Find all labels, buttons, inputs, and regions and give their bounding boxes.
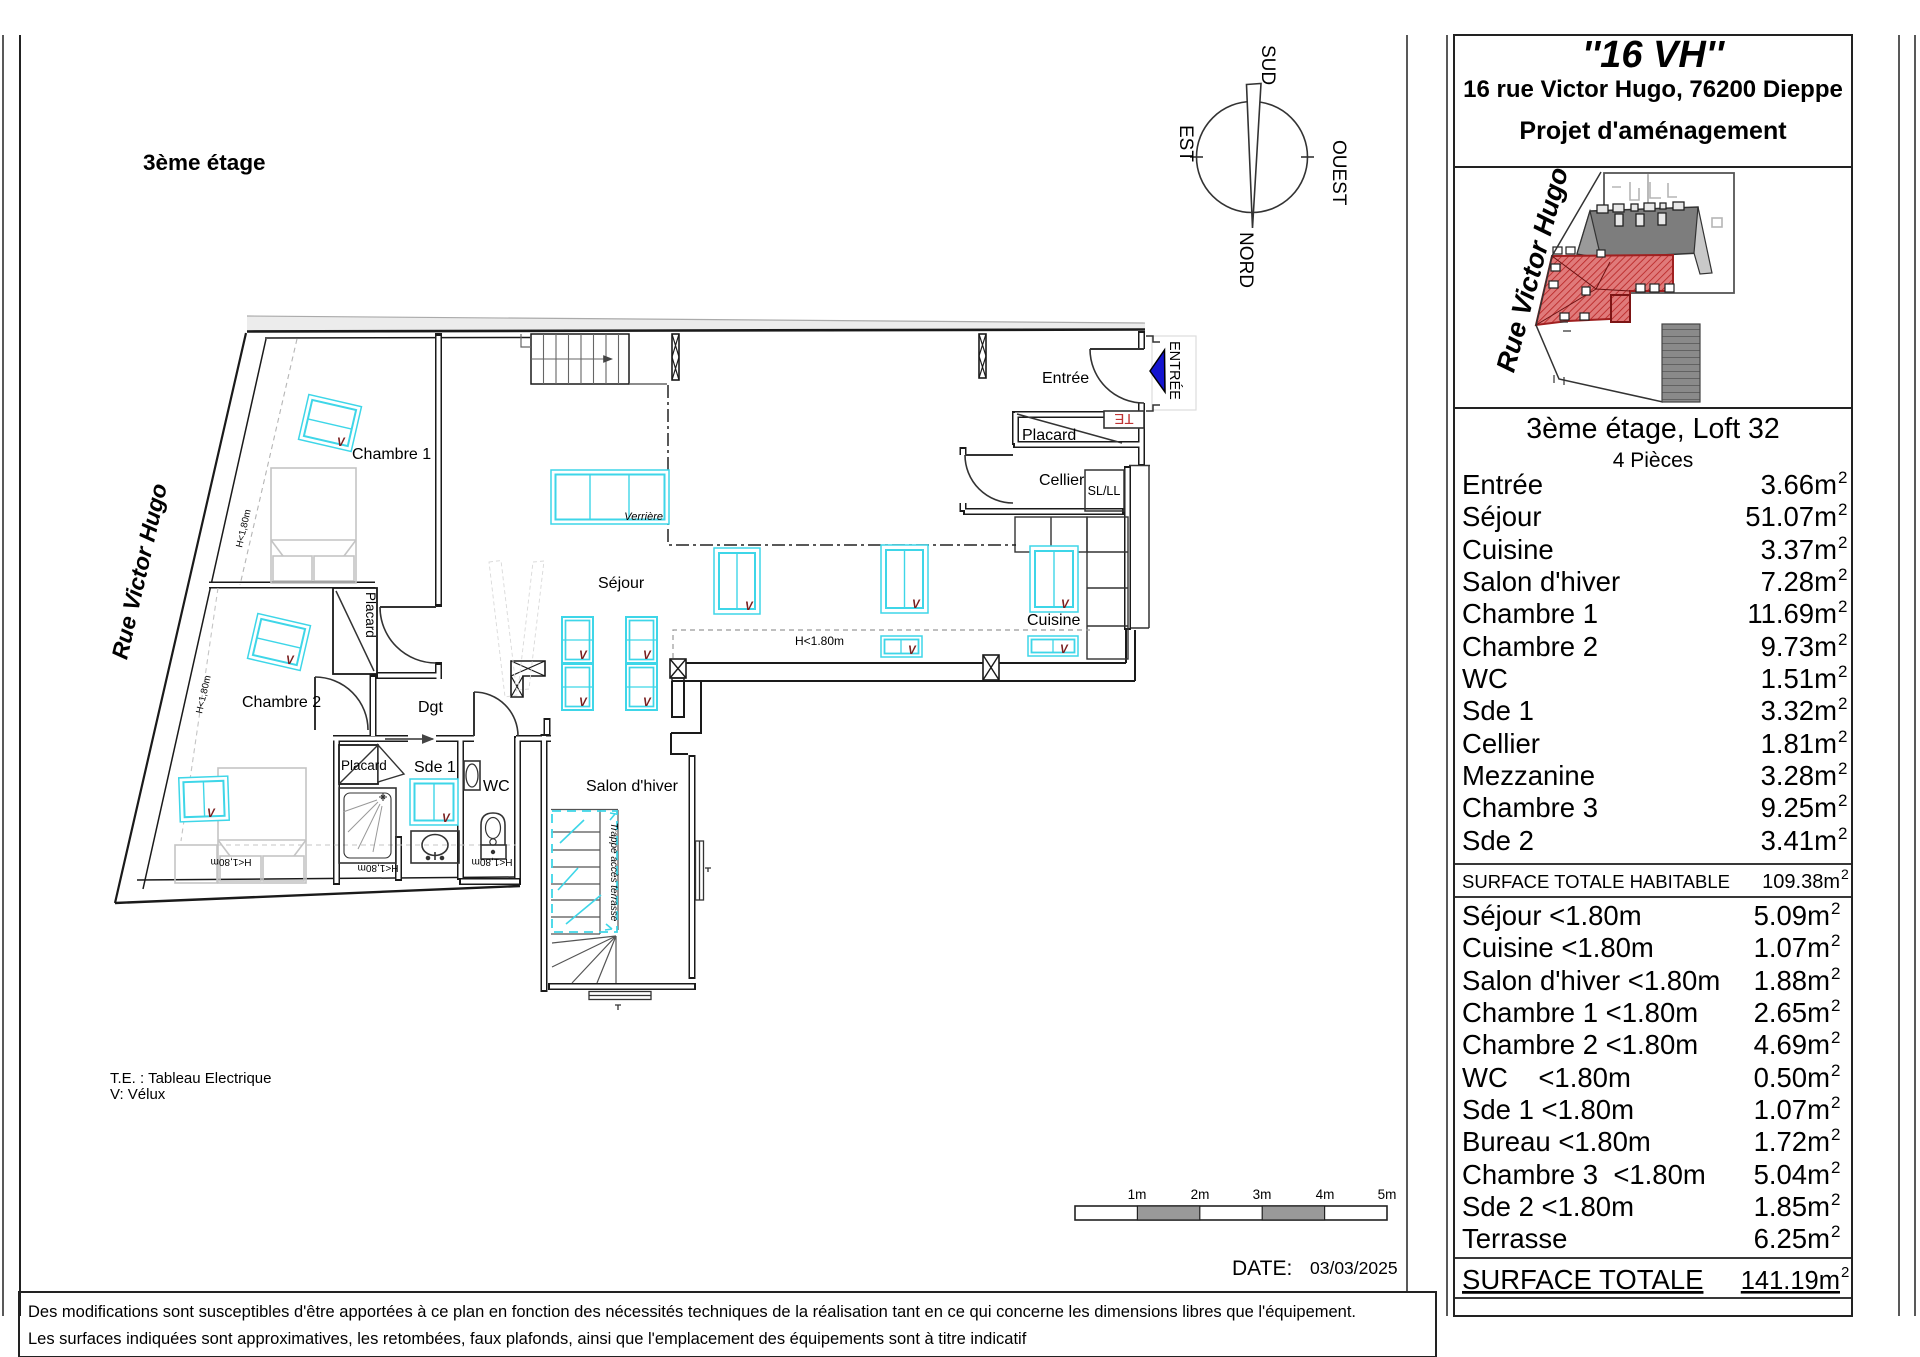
svg-text:V: V — [579, 697, 588, 709]
svg-text:Cuisine <1.80m: Cuisine <1.80m — [1462, 932, 1654, 963]
svg-text:Placard: Placard — [341, 758, 387, 773]
svg-text:109.38m: 109.38m — [1762, 871, 1840, 893]
svg-text:Chambre 1: Chambre 1 — [1462, 598, 1598, 629]
svg-text:Mezzanine: Mezzanine — [1462, 760, 1595, 791]
svg-text:2: 2 — [1838, 759, 1847, 778]
svg-text:SL/LL: SL/LL — [1088, 484, 1121, 498]
svg-text:4 Pièces: 4 Pièces — [1613, 449, 1694, 472]
svg-text:DATE:: DATE: — [1232, 1257, 1292, 1280]
svg-text:Salon d'hiver <1.80m: Salon d'hiver <1.80m — [1462, 965, 1720, 996]
svg-text:H<1,80m: H<1,80m — [194, 674, 213, 714]
svg-text:Séjour: Séjour — [598, 575, 645, 592]
svg-text:2: 2 — [1838, 694, 1847, 713]
svg-text:2: 2 — [1831, 899, 1840, 918]
svg-text:Salon d'hiver: Salon d'hiver — [586, 778, 679, 795]
svg-text:H<1,80m: H<1,80m — [234, 508, 253, 548]
svg-text:2: 2 — [1838, 565, 1847, 584]
svg-text:2: 2 — [1831, 1093, 1840, 1112]
svg-text:4m: 4m — [1316, 1187, 1335, 1202]
svg-text:WC: WC — [1462, 663, 1508, 694]
svg-text:0.50m: 0.50m — [1754, 1062, 1830, 1093]
svg-text:2: 2 — [1838, 468, 1847, 487]
svg-text:5m: 5m — [1378, 1187, 1397, 1202]
svg-text:Sde 1: Sde 1 — [414, 759, 456, 776]
svg-text:V: V — [337, 437, 346, 449]
svg-text:V: V — [912, 599, 921, 611]
svg-text:Salon d'hiver: Salon d'hiver — [1462, 566, 1620, 597]
svg-text:2: 2 — [1831, 1190, 1840, 1209]
svg-text:3.37m: 3.37m — [1761, 534, 1837, 565]
svg-text:V: V — [579, 650, 588, 662]
svg-text:2: 2 — [1838, 791, 1847, 810]
svg-text:141.19m: 141.19m — [1741, 1267, 1840, 1295]
svg-text:Chambre 1: Chambre 1 — [352, 446, 431, 463]
svg-text:SURFACE TOTALE: SURFACE TOTALE — [1462, 1264, 1703, 1295]
svg-text:Cellier: Cellier — [1462, 728, 1540, 759]
svg-text:4.69m: 4.69m — [1754, 1029, 1830, 1060]
svg-text:V: V — [442, 813, 451, 825]
svg-text:2: 2 — [1831, 1028, 1840, 1047]
svg-text:2: 2 — [1831, 996, 1840, 1015]
svg-text:H<1,80m: H<1,80m — [472, 856, 513, 867]
svg-text:SURFACE TOTALE HABITABLE: SURFACE TOTALE HABITABLE — [1462, 871, 1730, 892]
svg-text:16 rue Victor Hugo, 76200 Diep: 16 rue Victor Hugo, 76200 Dieppe — [1463, 76, 1843, 103]
svg-text:9.25m: 9.25m — [1761, 792, 1837, 823]
svg-text:2: 2 — [1841, 866, 1849, 882]
svg-text:''16 VH'': ''16 VH'' — [1582, 34, 1726, 76]
svg-text:Chambre 3: Chambre 3 — [1462, 792, 1598, 823]
svg-text:V: V — [745, 601, 754, 613]
svg-text:Placard: Placard — [1022, 427, 1076, 444]
svg-text:V: V — [643, 697, 652, 709]
svg-text:1.72m: 1.72m — [1754, 1126, 1830, 1157]
svg-text:Terrasse: Terrasse — [1462, 1223, 1567, 1254]
svg-text:Entrée: Entrée — [1042, 370, 1089, 387]
svg-text:2: 2 — [1831, 1125, 1840, 1144]
svg-text:2: 2 — [1831, 931, 1840, 950]
svg-text:Sde 2 <1.80m: Sde 2 <1.80m — [1462, 1191, 1634, 1222]
svg-text:V: Vélux: V: Vélux — [110, 1086, 166, 1103]
svg-text:2: 2 — [1838, 630, 1847, 649]
svg-text:Séjour: Séjour — [1462, 501, 1542, 532]
svg-text:3.66m: 3.66m — [1761, 469, 1837, 500]
svg-text:1.85m: 1.85m — [1754, 1191, 1830, 1222]
svg-text:Sde 1: Sde 1 — [1462, 695, 1534, 726]
svg-text:2: 2 — [1838, 533, 1847, 552]
svg-text:2: 2 — [1831, 1222, 1840, 1241]
svg-text:1.51m: 1.51m — [1761, 663, 1837, 694]
svg-text:Dgt: Dgt — [418, 699, 443, 716]
svg-text:Placard: Placard — [363, 592, 378, 638]
svg-text:11.69m: 11.69m — [1747, 598, 1837, 629]
svg-text:OUEST: OUEST — [1328, 140, 1349, 206]
svg-text:2: 2 — [1831, 964, 1840, 983]
svg-text:V: V — [1060, 644, 1069, 656]
svg-text:2m: 2m — [1191, 1187, 1210, 1202]
svg-text:Cellier: Cellier — [1039, 472, 1085, 489]
svg-text:3ème étage, Loft 32: 3ème étage, Loft 32 — [1526, 413, 1780, 445]
svg-text:V: V — [908, 645, 917, 657]
svg-text:2: 2 — [1838, 727, 1847, 746]
svg-text:Rue Victor Hugo: Rue Victor Hugo — [106, 481, 172, 662]
svg-text:2: 2 — [1838, 597, 1847, 616]
svg-text:Chambre 1 <1.80m: Chambre 1 <1.80m — [1462, 997, 1698, 1028]
svg-text:2.65m: 2.65m — [1754, 997, 1830, 1028]
svg-text:7.28m: 7.28m — [1761, 566, 1837, 597]
svg-text:Chambre 2: Chambre 2 — [1462, 631, 1598, 662]
svg-text:3ème étage: 3ème étage — [143, 150, 266, 175]
svg-text:T.E. : Tableau Electrique: T.E. : Tableau Electrique — [110, 1070, 271, 1087]
svg-text:Séjour <1.80m: Séjour <1.80m — [1462, 900, 1642, 931]
svg-text:1.88m: 1.88m — [1754, 965, 1830, 996]
svg-text:3m: 3m — [1253, 1187, 1272, 1202]
svg-text:TE: TE — [1114, 410, 1133, 427]
svg-text:Sde 2: Sde 2 — [1462, 825, 1534, 856]
svg-text:6.25m: 6.25m — [1754, 1223, 1830, 1254]
svg-text:V: V — [286, 655, 295, 667]
svg-text:1.07m: 1.07m — [1754, 932, 1830, 963]
svg-text:Cuisine: Cuisine — [1027, 612, 1080, 629]
svg-text:03/03/2025: 03/03/2025 — [1310, 1258, 1398, 1278]
svg-text:9.73m: 9.73m — [1761, 631, 1837, 662]
svg-text:Projet d'aménagement: Projet d'aménagement — [1519, 117, 1787, 145]
svg-text:Chambre 2 <1.80m: Chambre 2 <1.80m — [1462, 1029, 1698, 1060]
svg-text:Entrée: Entrée — [1462, 469, 1543, 500]
svg-text:2: 2 — [1831, 1158, 1840, 1177]
svg-text:WC: WC — [483, 778, 510, 795]
svg-text:Cuisine: Cuisine — [1462, 534, 1554, 565]
svg-text:1.81m: 1.81m — [1761, 728, 1837, 759]
svg-text:51.07m: 51.07m — [1745, 501, 1837, 532]
svg-text:2: 2 — [1841, 1264, 1849, 1281]
svg-text:2: 2 — [1838, 500, 1847, 519]
svg-text:3.28m: 3.28m — [1761, 760, 1837, 791]
svg-text:WC <1.80m: WC <1.80m — [1462, 1062, 1631, 1093]
svg-text:3.32m: 3.32m — [1761, 695, 1837, 726]
svg-text:H<1,80m: H<1,80m — [211, 856, 252, 867]
svg-text:Chambre 2: Chambre 2 — [242, 694, 321, 711]
svg-text:Des modifications sont suscep: Des modifications sont susceptibles d'êt… — [28, 1303, 1356, 1321]
svg-text:5.09m: 5.09m — [1754, 900, 1830, 931]
svg-text:NORD: NORD — [1235, 232, 1256, 288]
svg-text:Chambre 3 <1.80m: Chambre 3 <1.80m — [1462, 1159, 1706, 1190]
svg-text:H<1.80m: H<1.80m — [795, 634, 844, 648]
svg-text:3.41m: 3.41m — [1761, 825, 1837, 856]
svg-text:2: 2 — [1838, 824, 1847, 843]
svg-text:Sde 1 <1.80m: Sde 1 <1.80m — [1462, 1094, 1634, 1125]
svg-text:5.04m: 5.04m — [1754, 1159, 1830, 1190]
svg-text:V: V — [643, 650, 652, 662]
svg-text:Les surfaces indiquées sont ap: Les surfaces indiquées sont approximativ… — [28, 1330, 1027, 1348]
svg-text:V: V — [1061, 599, 1070, 611]
svg-text:Verrière: Verrière — [624, 511, 663, 523]
svg-text:V: V — [207, 808, 216, 820]
svg-text:1.07m: 1.07m — [1754, 1094, 1830, 1125]
svg-text:1m: 1m — [1128, 1187, 1147, 1202]
svg-text:SUD: SUD — [1257, 45, 1278, 85]
svg-text:Trappe accès terrasse: Trappe accès terrasse — [608, 823, 619, 922]
svg-text:H<1,80m: H<1,80m — [358, 862, 399, 873]
svg-text:EST: EST — [1175, 125, 1196, 162]
svg-text:Bureau <1.80m: Bureau <1.80m — [1462, 1126, 1651, 1157]
svg-text:ENTRÉE: ENTRÉE — [1166, 341, 1183, 400]
svg-text:2: 2 — [1838, 662, 1847, 681]
svg-text:2: 2 — [1831, 1061, 1840, 1080]
